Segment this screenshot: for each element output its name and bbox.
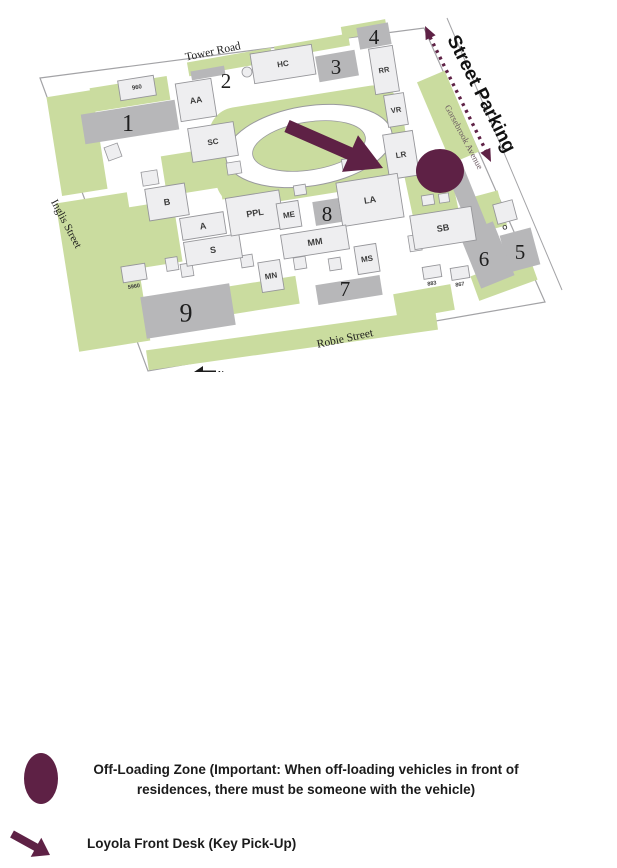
building-label-HC: HC <box>277 59 290 70</box>
lot-number-1: 1 <box>122 111 134 137</box>
building-label-SB: SB <box>436 222 450 234</box>
legend: Off-Loading Zone (Important: When off-lo… <box>0 372 617 496</box>
off-loading-zone-marker <box>416 149 464 193</box>
lot-number-2: 2 <box>221 69 232 93</box>
building-label-SC: SC <box>207 137 220 148</box>
building-5960 <box>121 263 147 283</box>
campus-map: 960AAHCSCRRVRLRLABASPPLMEMMMNMSSBO883867… <box>0 0 617 372</box>
building-label-RR: RR <box>378 65 391 76</box>
legend-loyola-text: Loyola Front Desk (Key Pick-Up) <box>87 834 296 854</box>
lot-number-9: 9 <box>180 299 193 328</box>
page: 960AAHCSCRRVRLRLABASPPLMEMMMNMSSBO883867… <box>0 0 617 496</box>
building-label-LA: LA <box>363 194 377 206</box>
building-label-VR: VR <box>390 105 402 116</box>
building-label-AA: AA <box>189 94 203 106</box>
building-867 <box>450 266 470 281</box>
lot-number-8: 8 <box>322 202 333 226</box>
campus-map-svg: 960AAHCSCRRVRLRLABASPPLMEMMMNMSSBO883867… <box>0 0 617 372</box>
building-label-LR: LR <box>395 150 407 161</box>
lot-number-3: 3 <box>331 55 342 79</box>
lot-number-6: 6 <box>479 247 490 271</box>
maroon-arrow-icon <box>0 822 70 868</box>
off-loading-circle-icon <box>24 753 58 804</box>
lot-number-7: 7 <box>340 277 351 301</box>
building-883 <box>422 265 442 280</box>
legend-off-loading-text: Off-Loading Zone (Important: When off-lo… <box>78 760 534 800</box>
lot-number-5: 5 <box>515 240 526 264</box>
lot-number-4: 4 <box>369 25 380 49</box>
